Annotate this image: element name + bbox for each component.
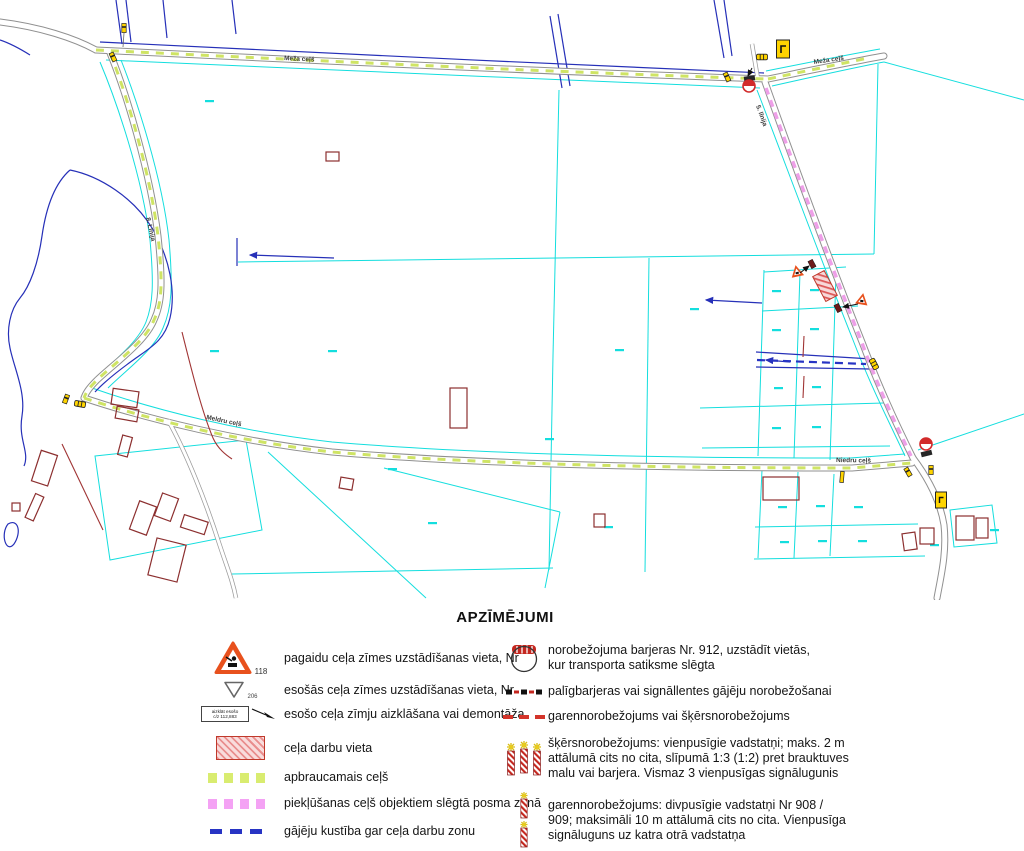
covered-sign-icon: aizklāt esošo c/z 112,883 xyxy=(196,706,284,722)
legend-label: palīgbarjeras vai signāllentes gājēju no… xyxy=(548,684,832,699)
parcel-lines-layer xyxy=(92,49,1024,598)
legend-row-access-route: piekļūšanas ceļš objektiem slēgtā posma … xyxy=(196,796,541,811)
barrier-912-symbol xyxy=(920,438,932,457)
detour-board-icon xyxy=(936,492,947,508)
give-way-triangle-icon: 206 xyxy=(196,680,284,700)
sign-number: 118 xyxy=(255,667,268,676)
mini-sign-icon xyxy=(840,471,845,482)
legend-row-cross-delineation: šķērsnorobežojums: vienpusīgie vadstatņi… xyxy=(500,736,849,781)
legend-row-barrier-912: norobežojuma barjeras Nr. 912, uzstādīt … xyxy=(500,642,810,674)
roadworks-sign-icon xyxy=(855,292,869,306)
pedestrian-route-swatch xyxy=(196,829,284,834)
legend-row-detour-route: apbraucamais ceļš xyxy=(196,770,388,785)
legend-label: šķērsnorobežojums: vienpusīgie vadstatņi… xyxy=(548,736,849,781)
access-route-swatch xyxy=(196,799,284,809)
site-plan-map: Meža ceļš Meža ceļš 8. Līnija 5. līnija … xyxy=(0,0,1024,600)
mini-sign-icon xyxy=(122,24,126,33)
mini-sign-icon xyxy=(904,467,912,477)
legend-row-pedestrian-route: gājēju kustība gar ceļa darbu zonu xyxy=(196,824,475,839)
legend-label: apbraucamais ceļš xyxy=(284,770,388,785)
legend-row-longitudinal-posts: garennorobežojums: divpusīgie vadstatņi … xyxy=(500,790,846,850)
covered-sign-box-text: aizklāt esošo c/z 112,883 xyxy=(201,706,249,722)
legend-label: esošo ceļa zīmju aizklāšana vai demontāž… xyxy=(284,707,524,722)
legend-label: garennorobežojums: divpusīgie vadstatņi … xyxy=(548,798,846,843)
legend-label: garennorobežojums vai šķērsnorobežojums xyxy=(548,709,790,724)
legend-title: APZĪMĒJUMI xyxy=(456,609,554,626)
sign-number: 206 xyxy=(247,694,257,700)
legend-label: norobežojuma barjeras Nr. 912, uzstādīt … xyxy=(548,643,810,673)
road-label: Meldru ceļš xyxy=(206,414,243,428)
barrier-912-symbol xyxy=(743,75,755,92)
roadworks-triangle-icon: 118 xyxy=(196,640,284,676)
car-icon xyxy=(757,54,768,60)
traffic-management-plan: Meža ceļš Meža ceļš 8. Līnija 5. līnija … xyxy=(0,0,1024,851)
legend-label: ceļa darbu vieta xyxy=(284,741,372,756)
guide-posts-two-icon xyxy=(500,790,548,850)
work-area-swatch xyxy=(196,736,284,760)
legend: APZĪMĒJUMI 118 pagaidu ceļa zīmes uzstād… xyxy=(0,600,1024,851)
legend-label: pagaidu ceļa zīmes uzstādīšanas vieta, N… xyxy=(284,651,519,666)
legend-label: gājēju kustība gar ceļa darbu zonu xyxy=(284,824,475,839)
legend-row-existing-sign: 206 esošās ceļa zīmes uzstādīšanas vieta… xyxy=(196,680,514,700)
detour-board-icon xyxy=(777,40,790,58)
guide-posts-three-icon xyxy=(500,740,548,778)
detour-route-swatch xyxy=(196,773,284,783)
parcel-markers-layer xyxy=(205,100,999,546)
road-labels-layer: Meža ceļš Meža ceļš 8. Līnija 5. līnija … xyxy=(144,55,871,465)
legend-row-work-area: ceļa darbu vieta xyxy=(196,736,372,760)
symbols-layer xyxy=(62,24,946,509)
mini-sign-icon xyxy=(62,394,69,404)
red-dash-icon xyxy=(500,715,548,719)
legend-row-aux-barriers: palīgbarjeras vai signāllentes gājēju no… xyxy=(500,684,832,699)
aux-barrier-icon xyxy=(500,688,548,696)
barrier-912-icon xyxy=(500,642,548,674)
legend-row-sign-covering: aizklāt esošo c/z 112,883 esošo ceļa zīm… xyxy=(196,706,524,722)
legend-row-longitudinal-barrier: garennorobežojums vai šķērsnorobežojums xyxy=(500,709,790,724)
legend-label: esošās ceļa zīmes uzstādīšanas vieta, Nr xyxy=(284,683,514,698)
road-label: Niedru ceļš xyxy=(836,457,872,465)
roads-layer xyxy=(0,22,945,598)
mini-sign-icon xyxy=(929,466,933,475)
aux-barrier-symbol xyxy=(808,259,816,268)
legend-row-temporary-sign: 118 pagaidu ceļa zīmes uzstādīšanas viet… xyxy=(196,640,519,676)
road-label: 5. līnija xyxy=(754,104,768,127)
